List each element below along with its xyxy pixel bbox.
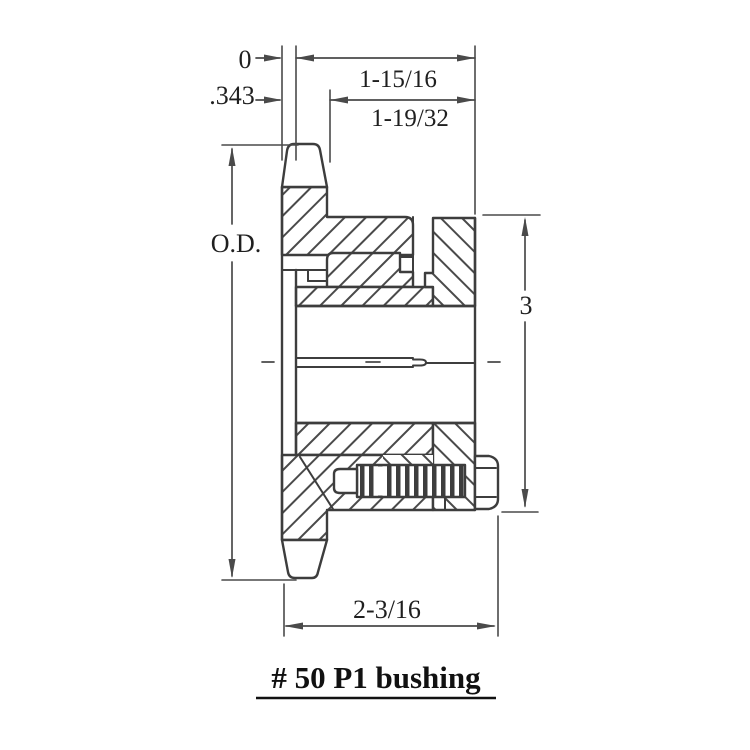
- bushing-barrel-upper-section: [296, 287, 433, 306]
- bolt-head: [475, 456, 498, 509]
- tooth-bottom: [282, 540, 327, 578]
- dim-label-outside-diameter: O.D.: [211, 229, 262, 258]
- arrowhead: [330, 97, 348, 104]
- arrowhead: [296, 55, 314, 62]
- dimension-zero-reference: 0: [239, 45, 283, 74]
- arrowhead: [264, 55, 282, 62]
- arrowhead: [457, 97, 475, 104]
- drawing-title-block: # 50 P1 bushing: [256, 660, 496, 698]
- dim-label-overall-width: 2-3/16: [353, 595, 421, 624]
- bolt-tip: [334, 469, 357, 493]
- arrowhead: [457, 55, 475, 62]
- dimension-outside-diameter: O.D.: [211, 147, 262, 578]
- slot-end-cap: [413, 360, 426, 366]
- arrowhead: [264, 97, 282, 104]
- bolt-thread-gap: [376, 467, 383, 496]
- dim-label-hub-to-flange: 1-15/16: [359, 66, 437, 93]
- bolt-threads: [357, 465, 465, 497]
- arrowhead: [477, 623, 496, 630]
- dimension-face-offset: .343: [209, 81, 282, 110]
- dimension-bushing-length: 1-19/32: [330, 97, 475, 133]
- engineering-drawing-page: 0 .343 1-15/16 1-19/32 O.D. 3 2-3/16: [0, 0, 750, 750]
- sprocket-plate-hub-upper-section: [282, 187, 413, 255]
- dim-label-bushing-length: 1-19/32: [371, 105, 449, 132]
- bushing-thread-boss-section: [383, 455, 433, 465]
- drawing-title: # 50 P1 bushing: [271, 660, 481, 695]
- arrowhead: [522, 489, 529, 508]
- arrowhead: [284, 623, 303, 630]
- sprocket-section-drawing: 0 .343 1-15/16 1-19/32 O.D. 3 2-3/16: [0, 0, 750, 750]
- dim-label-flange-diameter: 3: [520, 291, 533, 320]
- bushing-barrel-lower-section: [296, 423, 433, 455]
- bushing-flange-upper-section: [425, 218, 475, 306]
- arrowhead: [229, 559, 236, 578]
- dim-label-zero-reference: 0: [239, 45, 252, 74]
- arrowhead: [522, 217, 529, 236]
- hub-taper-block-section: [327, 253, 413, 287]
- extension-lines: [222, 46, 540, 636]
- bushing-saw-slot: [296, 358, 475, 367]
- dimension-overall-width: 2-3/16: [284, 595, 496, 630]
- dimension-hub-to-flange: 1-15/16: [296, 55, 475, 94]
- dimension-flange-diameter: 3: [520, 217, 533, 508]
- tooth-top: [282, 144, 327, 187]
- arrowhead: [229, 147, 236, 166]
- dim-label-face-offset: .343: [209, 81, 255, 110]
